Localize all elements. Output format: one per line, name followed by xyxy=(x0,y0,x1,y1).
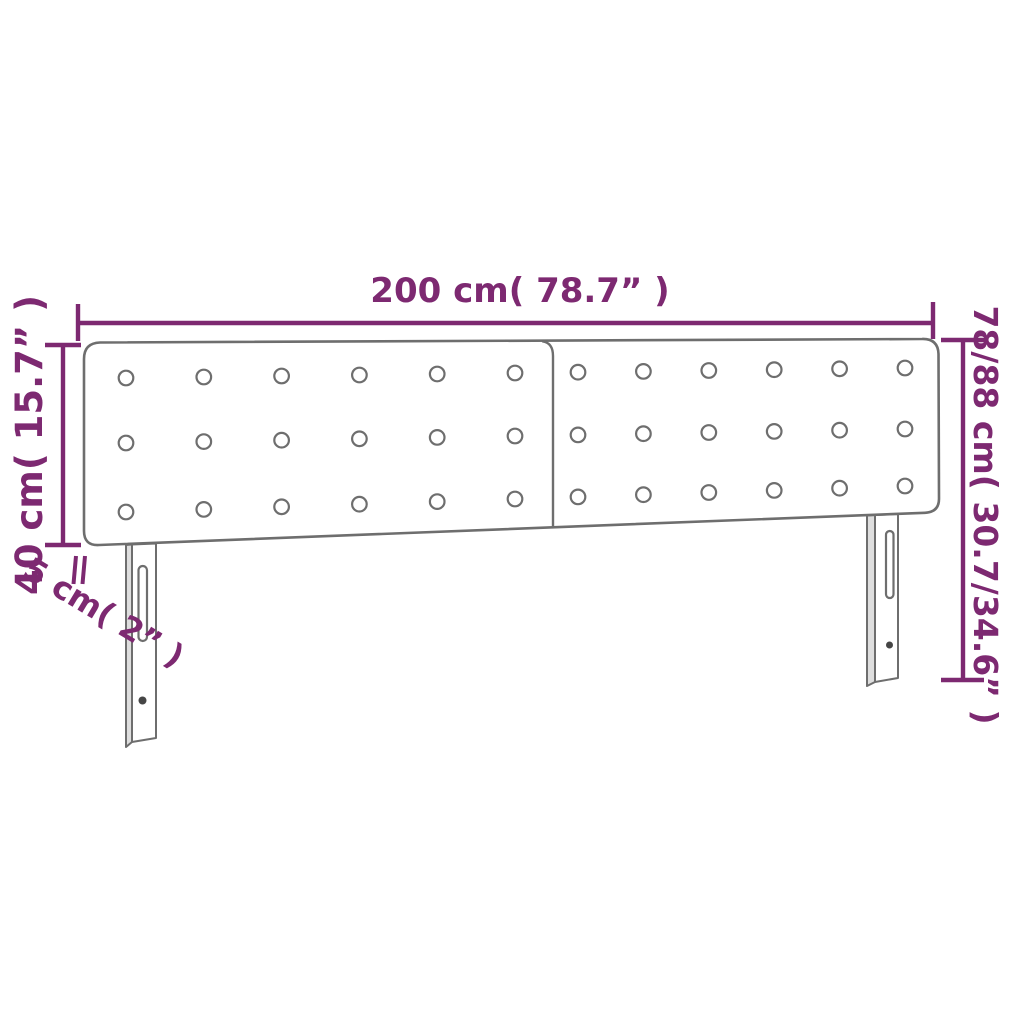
thickness-dimension-label: 5 cm( 2” ) xyxy=(17,550,191,676)
tufting-button xyxy=(571,490,586,505)
tufting-button xyxy=(119,371,134,386)
tufting-button xyxy=(571,428,586,443)
total-height-dimension: 78/88 cm( 30.7/34.6” ) xyxy=(941,305,1005,724)
tufting-button xyxy=(352,432,367,447)
tufting-button xyxy=(119,436,134,451)
tufting-button xyxy=(119,505,134,520)
tufting-button xyxy=(197,502,212,517)
tufting-button xyxy=(571,365,586,380)
right-leg-screw xyxy=(886,642,893,649)
tufting-button xyxy=(352,368,367,383)
width-dimension-label: 200 cm( 78.7” ) xyxy=(370,271,669,311)
tufting-button xyxy=(702,363,717,378)
tufting-button xyxy=(352,497,367,512)
tufting-button xyxy=(430,367,445,382)
dimension-diagram-page: 200 cm( 78.7” ) 40 cm( 15.7” ) 78/88 cm(… xyxy=(0,0,1024,1024)
width-dimension: 200 cm( 78.7” ) xyxy=(78,271,933,341)
tufting-button xyxy=(274,433,289,448)
tufting-button xyxy=(274,369,289,384)
tufting-button xyxy=(767,424,782,439)
left-leg-screw xyxy=(139,697,147,705)
tufting-button xyxy=(636,487,651,502)
headboard-diagram-svg: 200 cm( 78.7” ) 40 cm( 15.7” ) 78/88 cm(… xyxy=(0,0,1024,1024)
thickness-dimension: 5 cm( 2” ) xyxy=(17,550,191,676)
tufting-button xyxy=(898,479,913,494)
tufting-button xyxy=(508,366,523,381)
tufting-button xyxy=(898,422,913,437)
tufting-button xyxy=(832,362,847,377)
tufting-button xyxy=(702,425,717,440)
tufting-button xyxy=(197,434,212,449)
tufting-button xyxy=(430,430,445,445)
tufting-button xyxy=(508,492,523,507)
right-leg xyxy=(867,514,898,686)
panel-height-dimension-label: 40 cm( 15.7” ) xyxy=(8,295,51,595)
headboard-drawing xyxy=(84,339,939,747)
tufting-button xyxy=(832,481,847,496)
tufting-button xyxy=(197,370,212,385)
tufting-button xyxy=(430,494,445,509)
tufting-button xyxy=(898,361,913,376)
panel-height-dimension: 40 cm( 15.7” ) xyxy=(8,295,81,595)
total-height-dimension-label: 78/88 cm( 30.7/34.6” ) xyxy=(966,305,1005,724)
tufting-button xyxy=(636,364,651,379)
tufting-button xyxy=(702,485,717,500)
tufting-button xyxy=(767,483,782,498)
tufting-button xyxy=(832,423,847,438)
tufting-button xyxy=(274,500,289,515)
right-leg-slot xyxy=(886,531,894,598)
tufting-button xyxy=(508,429,523,444)
right-leg-side-face xyxy=(867,515,875,686)
tufting-button xyxy=(767,362,782,377)
tufting-button xyxy=(636,426,651,441)
